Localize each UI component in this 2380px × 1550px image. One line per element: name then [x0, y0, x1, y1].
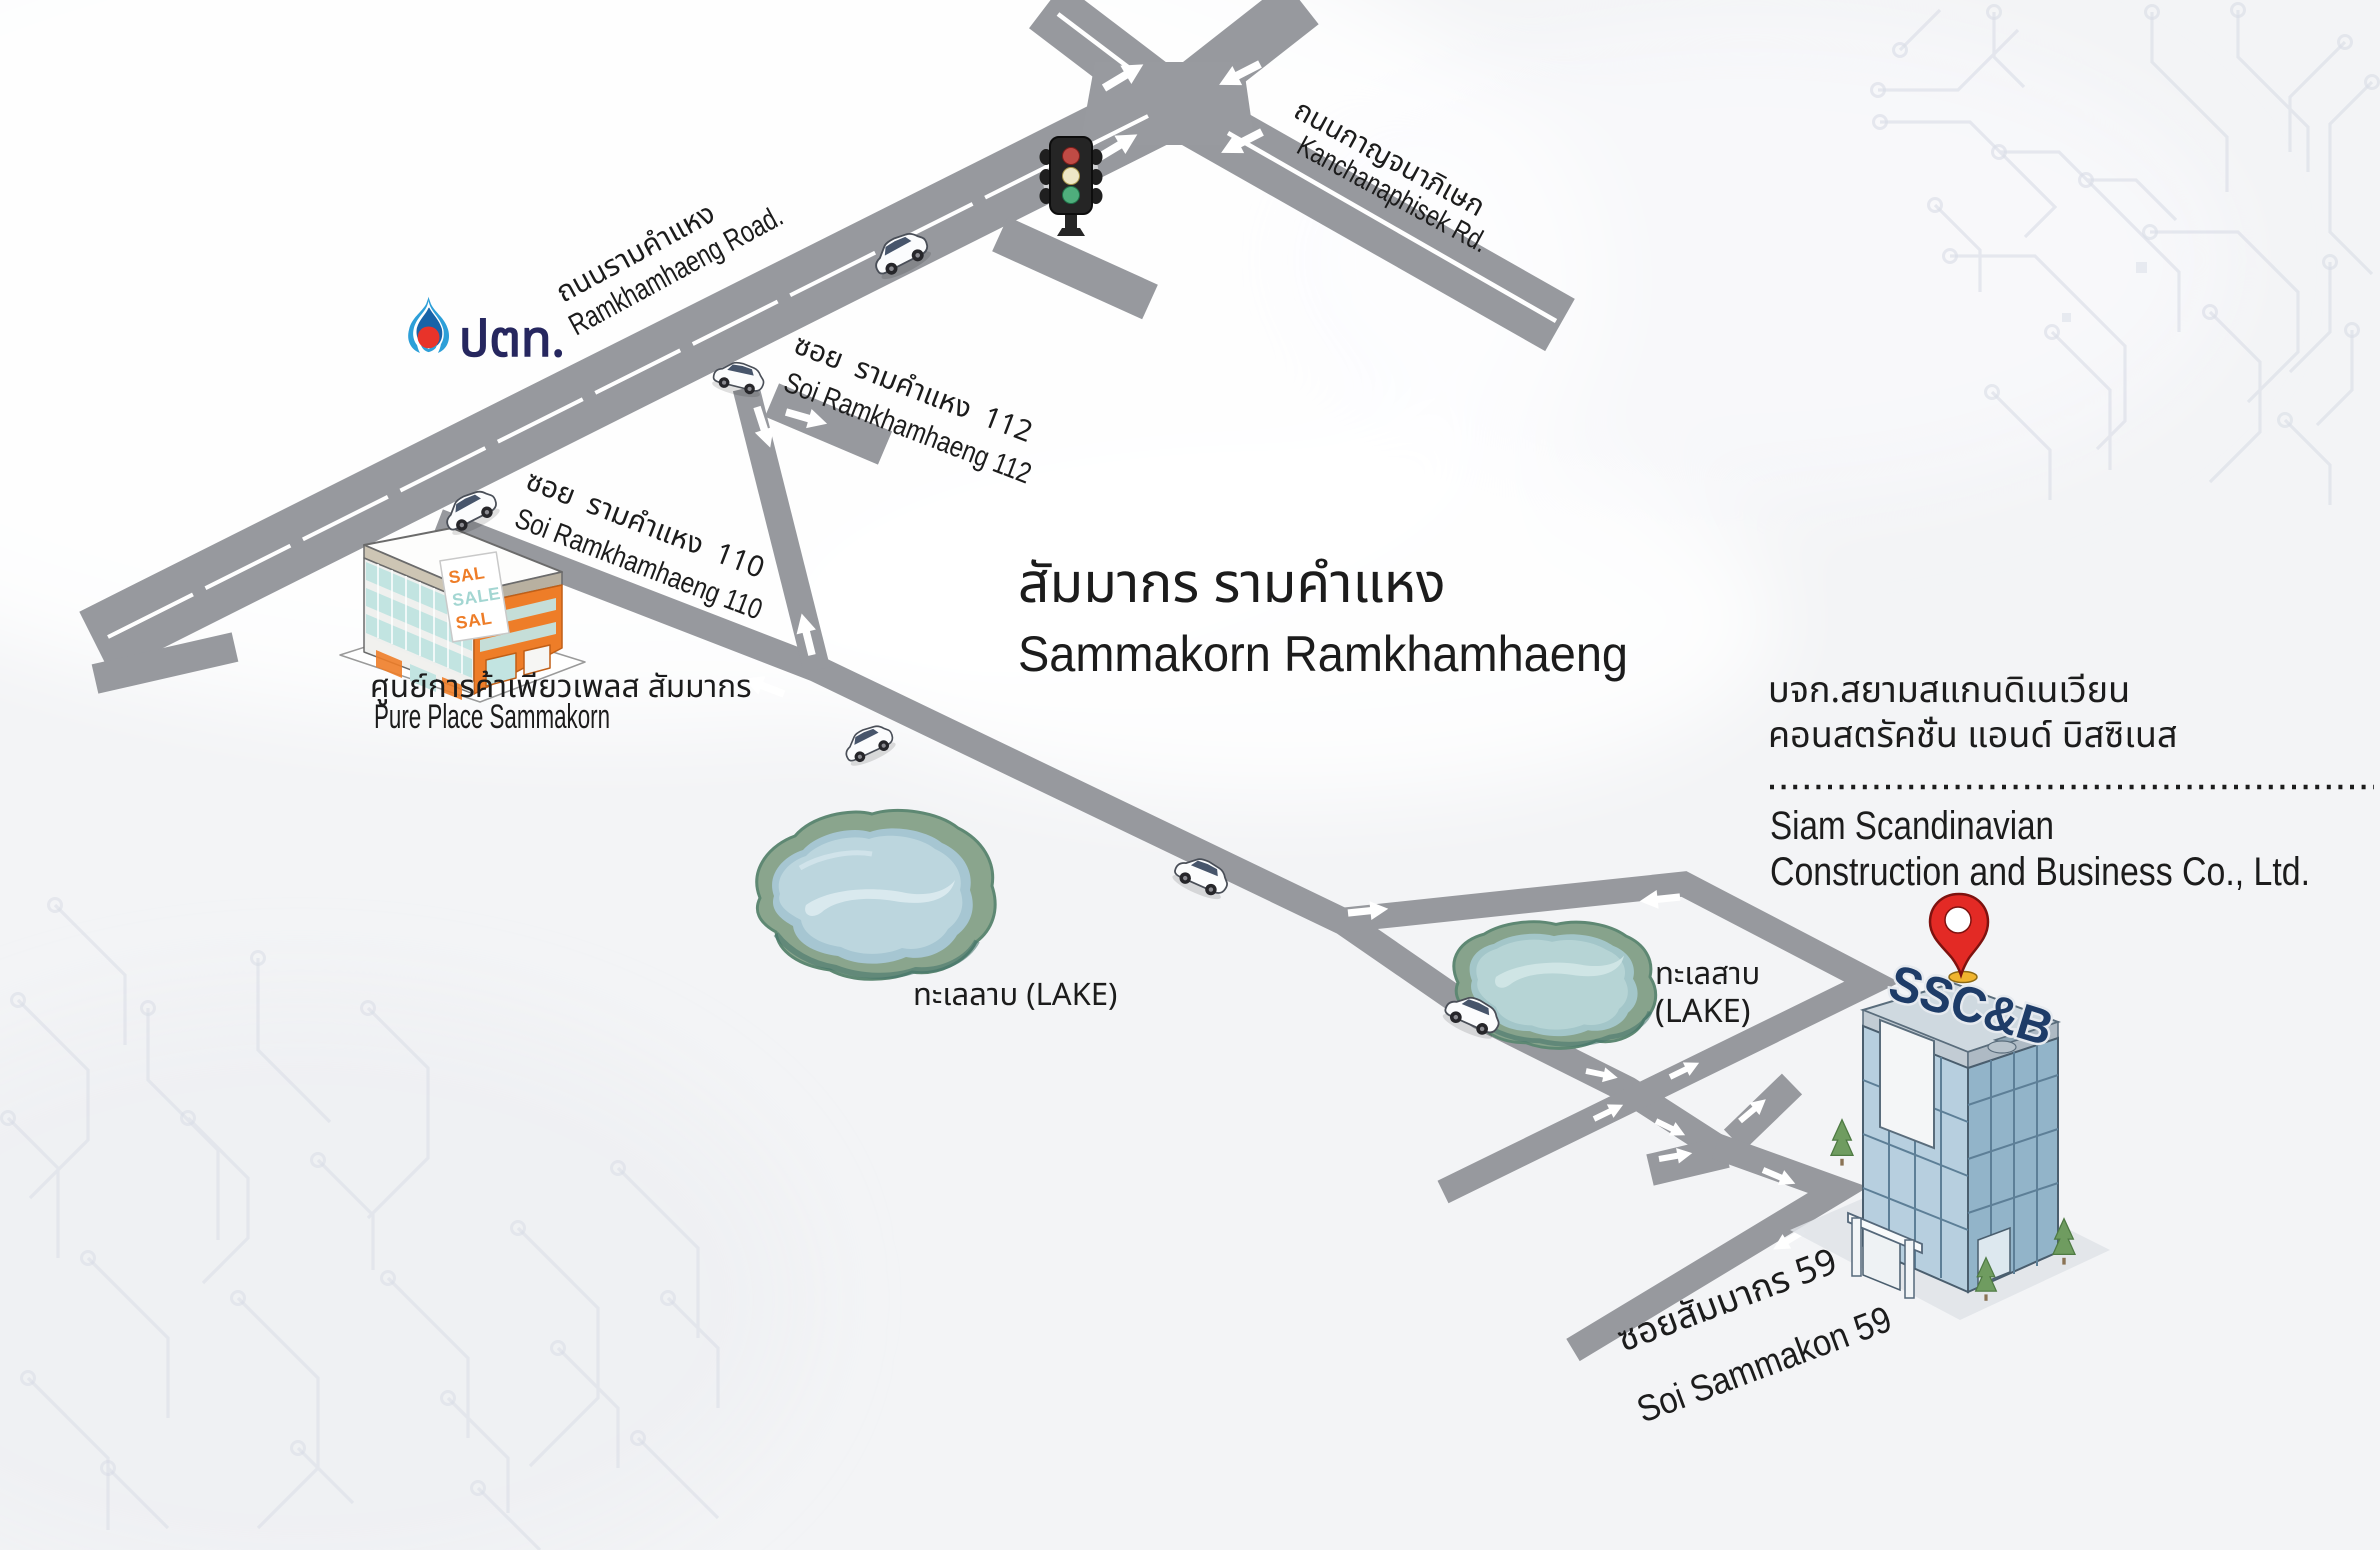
- svg-text:Construction and Business Co.,: Construction and Business Co., Ltd.: [1770, 850, 2310, 894]
- svg-text:Sammakorn Ramkhamhaeng: Sammakorn Ramkhamhaeng: [1018, 626, 1628, 682]
- svg-text:Siam Scandinavian: Siam Scandinavian: [1770, 804, 2054, 848]
- svg-text:Pure Place Sammakorn: Pure Place Sammakorn: [374, 698, 610, 736]
